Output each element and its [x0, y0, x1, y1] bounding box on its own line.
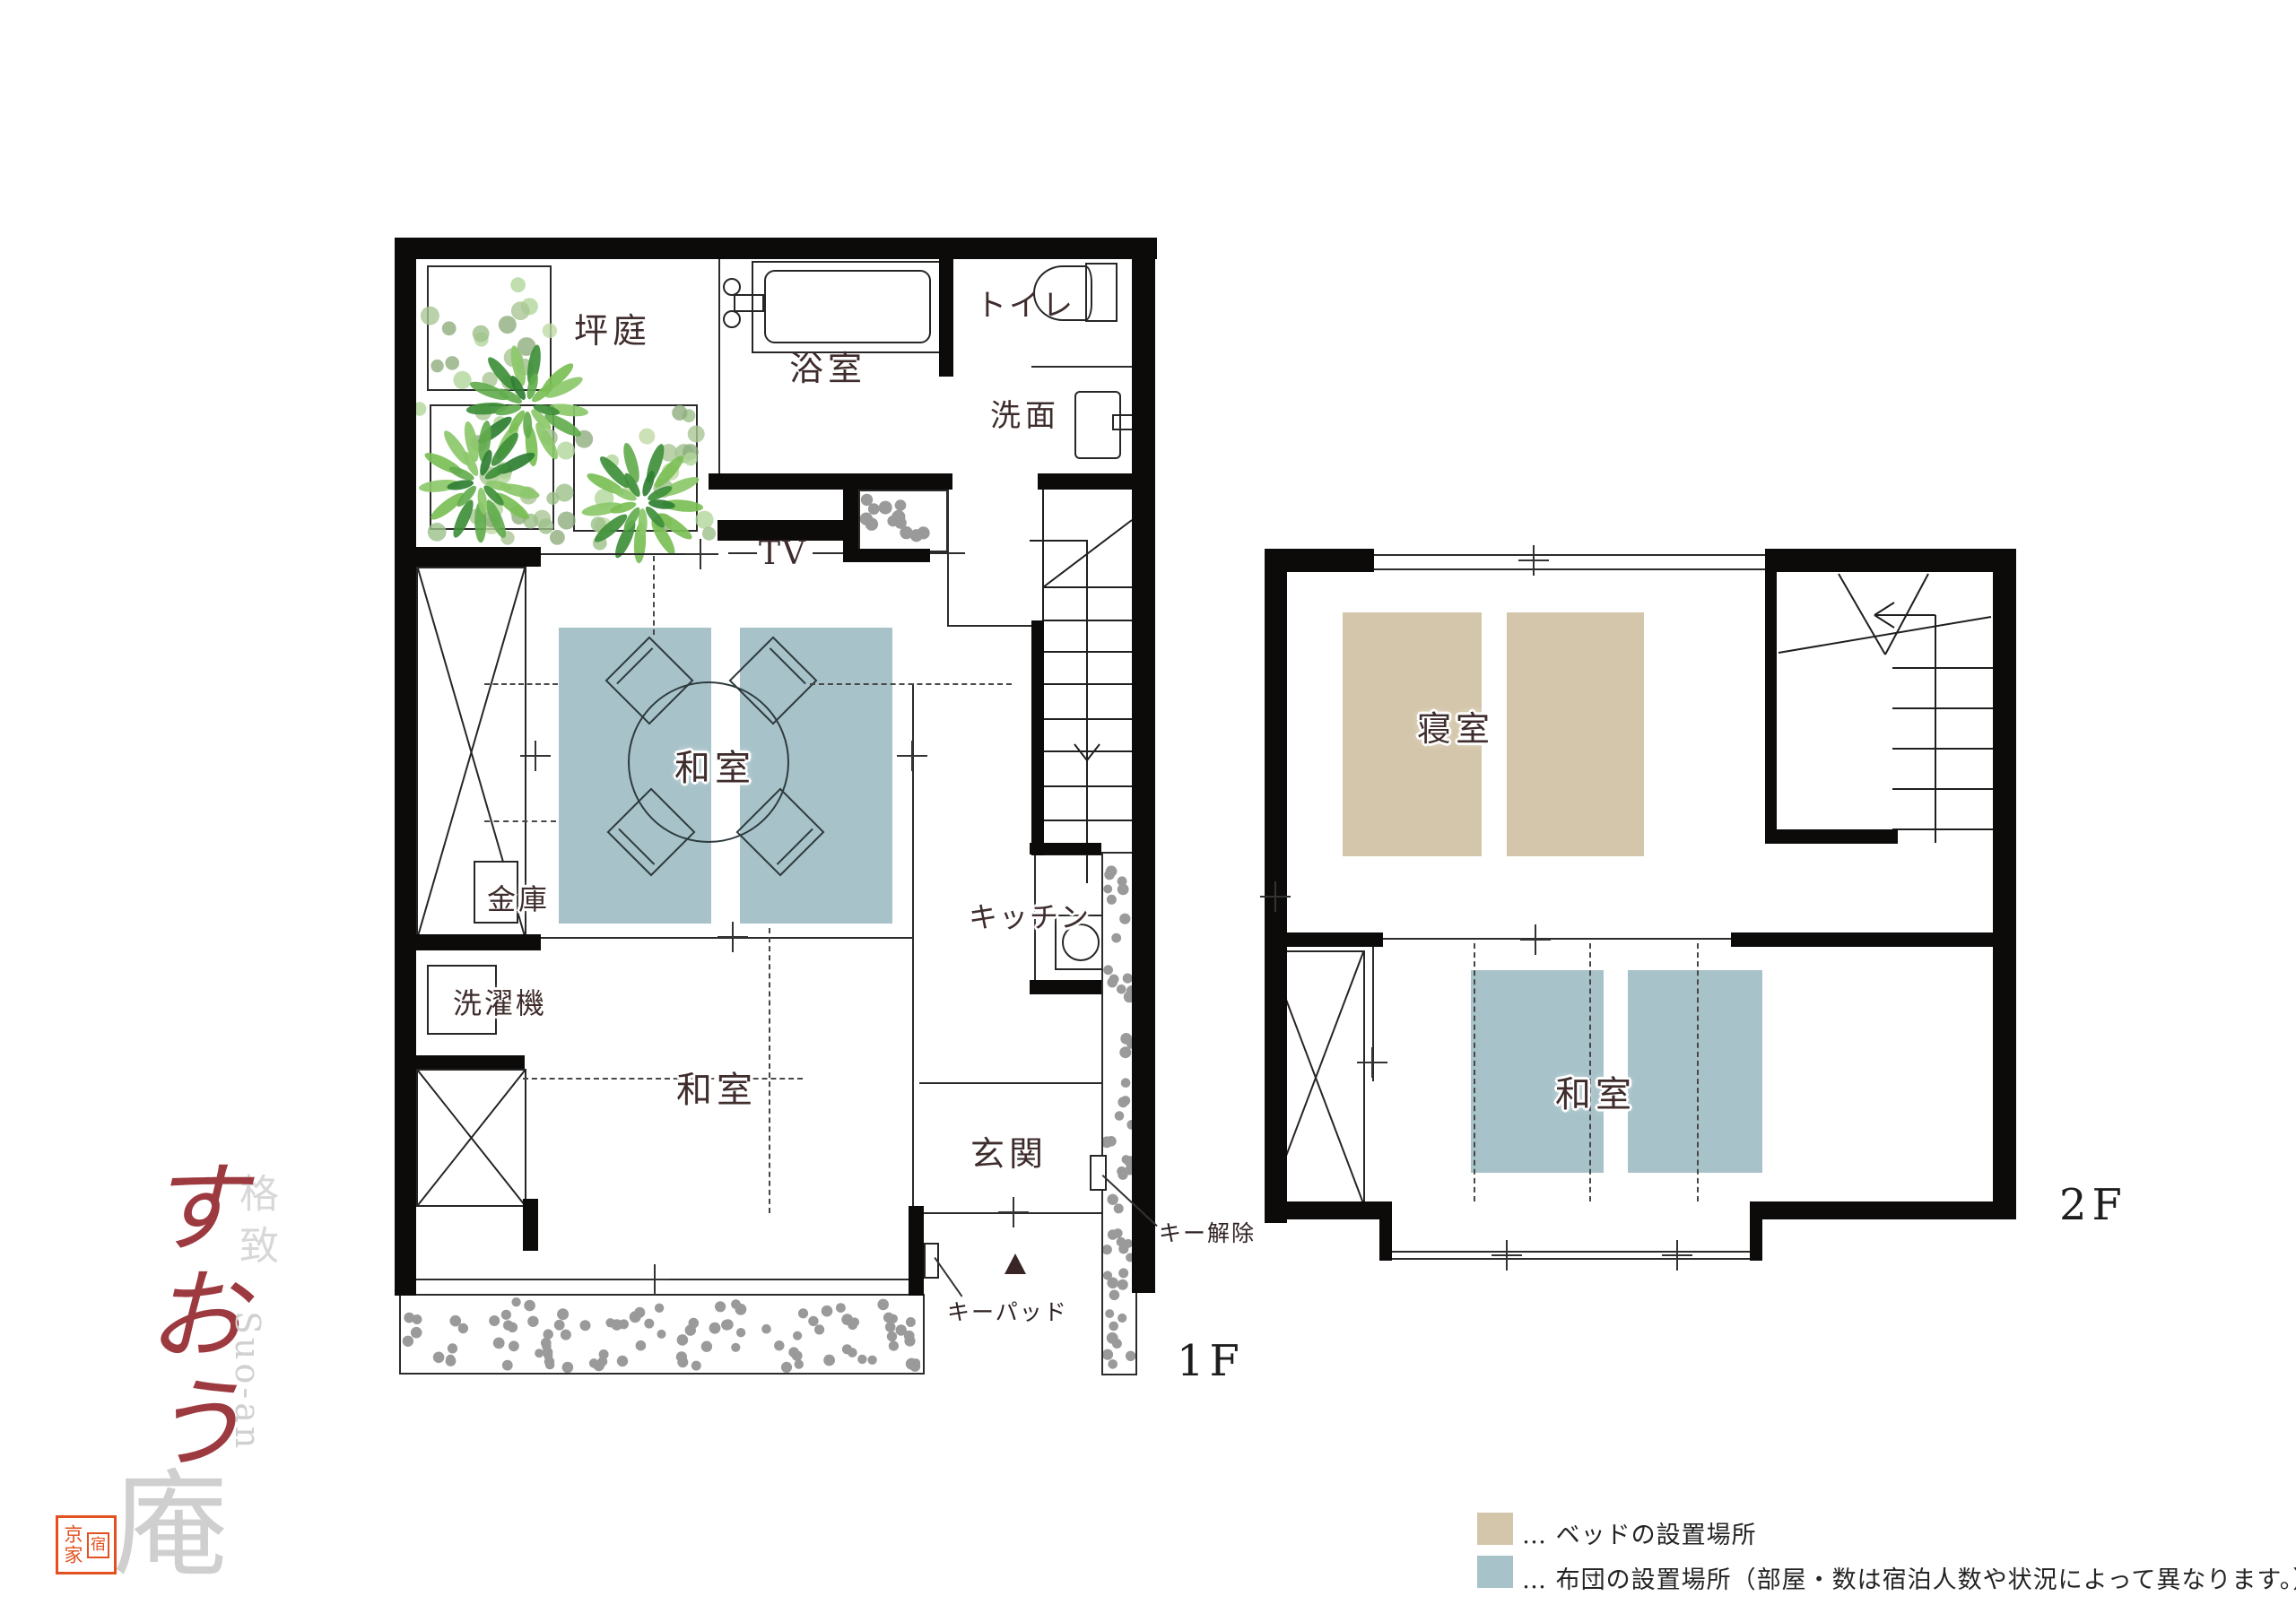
- room-label-washitsu-front: 和室: [676, 1061, 757, 1113]
- wall-segment: [843, 549, 930, 562]
- room-label-entrance: 玄関: [970, 1126, 1048, 1175]
- wall-segment: [523, 1199, 538, 1251]
- wall-segment: [395, 547, 541, 567]
- room-label-safe: 金庫: [487, 877, 550, 918]
- room-label-garden: 坪庭: [574, 303, 651, 352]
- closet-xbox: [416, 1069, 526, 1207]
- room-label-bath: 浴室: [789, 341, 866, 390]
- wall-segment: [1030, 980, 1101, 994]
- gravel-strip-bottom: [399, 1294, 925, 1375]
- room-label-washroom: 洗面: [990, 391, 1060, 435]
- room-label-toilet: トイレ: [976, 281, 1075, 325]
- futon-2f-right: [1628, 970, 1762, 1173]
- annotation-keypad: キーパッド: [947, 1295, 1068, 1327]
- brand-seal-icon: 京家 宿: [56, 1515, 117, 1574]
- stairs-2f-icon: [1777, 549, 1993, 858]
- room-label-washing-machine: 洗濯機: [453, 981, 547, 1022]
- wall-segment: [395, 238, 1157, 259]
- legend-swatch-futon: [1477, 1556, 1513, 1588]
- room-label-kitchen: キッチン: [969, 895, 1091, 936]
- bed-2f-right: [1507, 612, 1644, 856]
- legend-swatch-bed: [1477, 1513, 1513, 1545]
- wall-segment: [408, 1055, 525, 1069]
- room-label-tv: TV: [759, 535, 807, 572]
- wall-segment: [395, 934, 541, 950]
- wall-segment: [939, 238, 953, 377]
- room-label-washitsu-2f: 和室: [1555, 1065, 1636, 1117]
- entrance-marker-icon: [1004, 1253, 1026, 1274]
- key-release-device-icon: [1090, 1155, 1107, 1191]
- legend-label-bed: … ベッドの設置場所: [1522, 1515, 1757, 1550]
- floor2-tag: 2F: [2059, 1180, 2127, 1230]
- wall-segment: [1030, 843, 1101, 854]
- seal-left-text: 京家: [63, 1524, 82, 1566]
- wall-segment: [1031, 620, 1044, 855]
- legend-label-futon: … 布団の設置場所（部屋・数は宿泊人数や状況によって異なります。）: [1522, 1560, 2296, 1595]
- annotation-key-release: キー解除: [1159, 1216, 1256, 1248]
- wall-segment: [909, 1206, 924, 1296]
- wall-segment: [395, 238, 416, 1296]
- brand-name-an: 庵: [113, 1463, 228, 1590]
- floorplan-page: 坪庭 浴室 トイレ 洗面 TV 和室 金庫 洗濯機 キッチン 和室 玄関 キーパ…: [0, 0, 2296, 1622]
- room-label-washitsu-main: 和室: [674, 739, 755, 791]
- floor1-tag: 1F: [1177, 1336, 1245, 1386]
- seal-right-text: 宿: [87, 1532, 109, 1558]
- wall-segment: [1132, 238, 1155, 1293]
- gravel-patch-inner: [858, 490, 948, 552]
- wall-segment: [709, 473, 952, 490]
- wall-segment: [1038, 473, 1155, 490]
- brand-name-romaji: Suo-an: [228, 1311, 267, 1452]
- room-label-bedroom: 寝室: [1417, 701, 1494, 750]
